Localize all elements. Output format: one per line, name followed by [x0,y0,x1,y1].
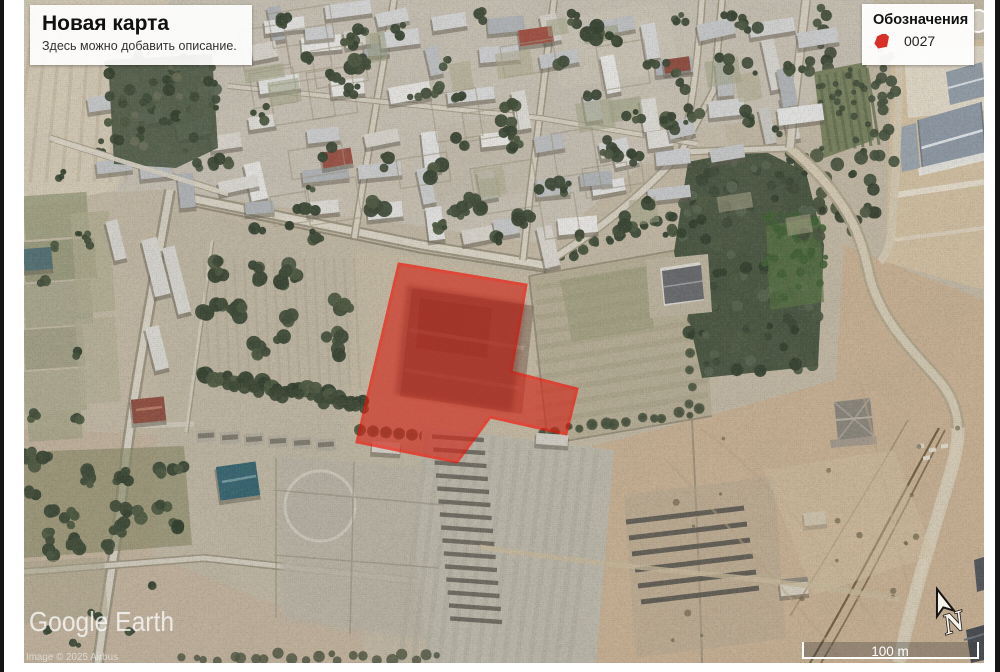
svg-text:Image © 2025 Airbus: Image © 2025 Airbus [26,651,118,663]
svg-text:Google Earth: Google Earth [29,606,174,637]
svg-text:100 m: 100 m [871,644,909,659]
